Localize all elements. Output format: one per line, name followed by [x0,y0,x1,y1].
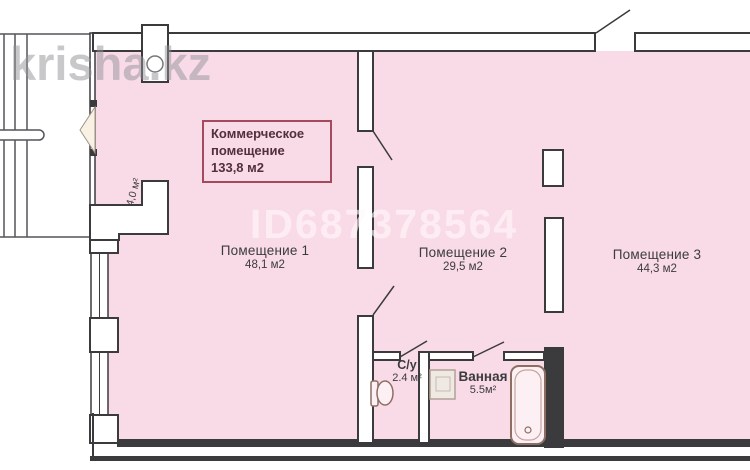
toilet-icon [371,381,393,406]
door-swing-icon [596,10,630,33]
room-area: 2.4 м² [372,372,442,384]
toilet-room-label: С/у 2.4 м² [372,358,442,384]
entry-door-icon [80,100,97,156]
room-3-label: Помещение 3 44,3 м2 [577,247,737,275]
room-2-label: Помещение 2 29,5 м2 [383,245,543,273]
commercial-label-line1: Коммерческое [211,126,323,143]
room-name: Помещение 2 [383,245,543,260]
commercial-label-box: Коммерческое помещение 133,8 м2 [202,120,332,183]
room-area: 5.5м² [433,384,533,396]
listing-id-watermark: ID687378564 [250,201,518,248]
room-name: Помещение 1 [185,243,345,258]
handrail-icon [0,130,44,140]
column-icon [545,218,563,312]
room-name: Ванная [433,369,533,384]
room-1-label: Помещение 1 48,1 м2 [185,243,345,271]
bathroom-label: Ванная 5.5м² [433,369,533,396]
commercial-label-line2: помещение [211,143,323,160]
floor-plan-canvas: krisha.kz ID687378564 Коммерческое помещ… [0,0,750,470]
commercial-label-area: 133,8 м2 [211,160,323,177]
room-area: 48,1 м2 [185,259,345,271]
room-name: С/у [372,358,442,372]
room-area: 29,5 м2 [383,261,543,273]
room-name: Помещение 3 [577,247,737,262]
column-icon [543,150,563,186]
room-area: 44,3 м2 [577,263,737,275]
krisha-watermark: krisha.kz [10,36,211,91]
